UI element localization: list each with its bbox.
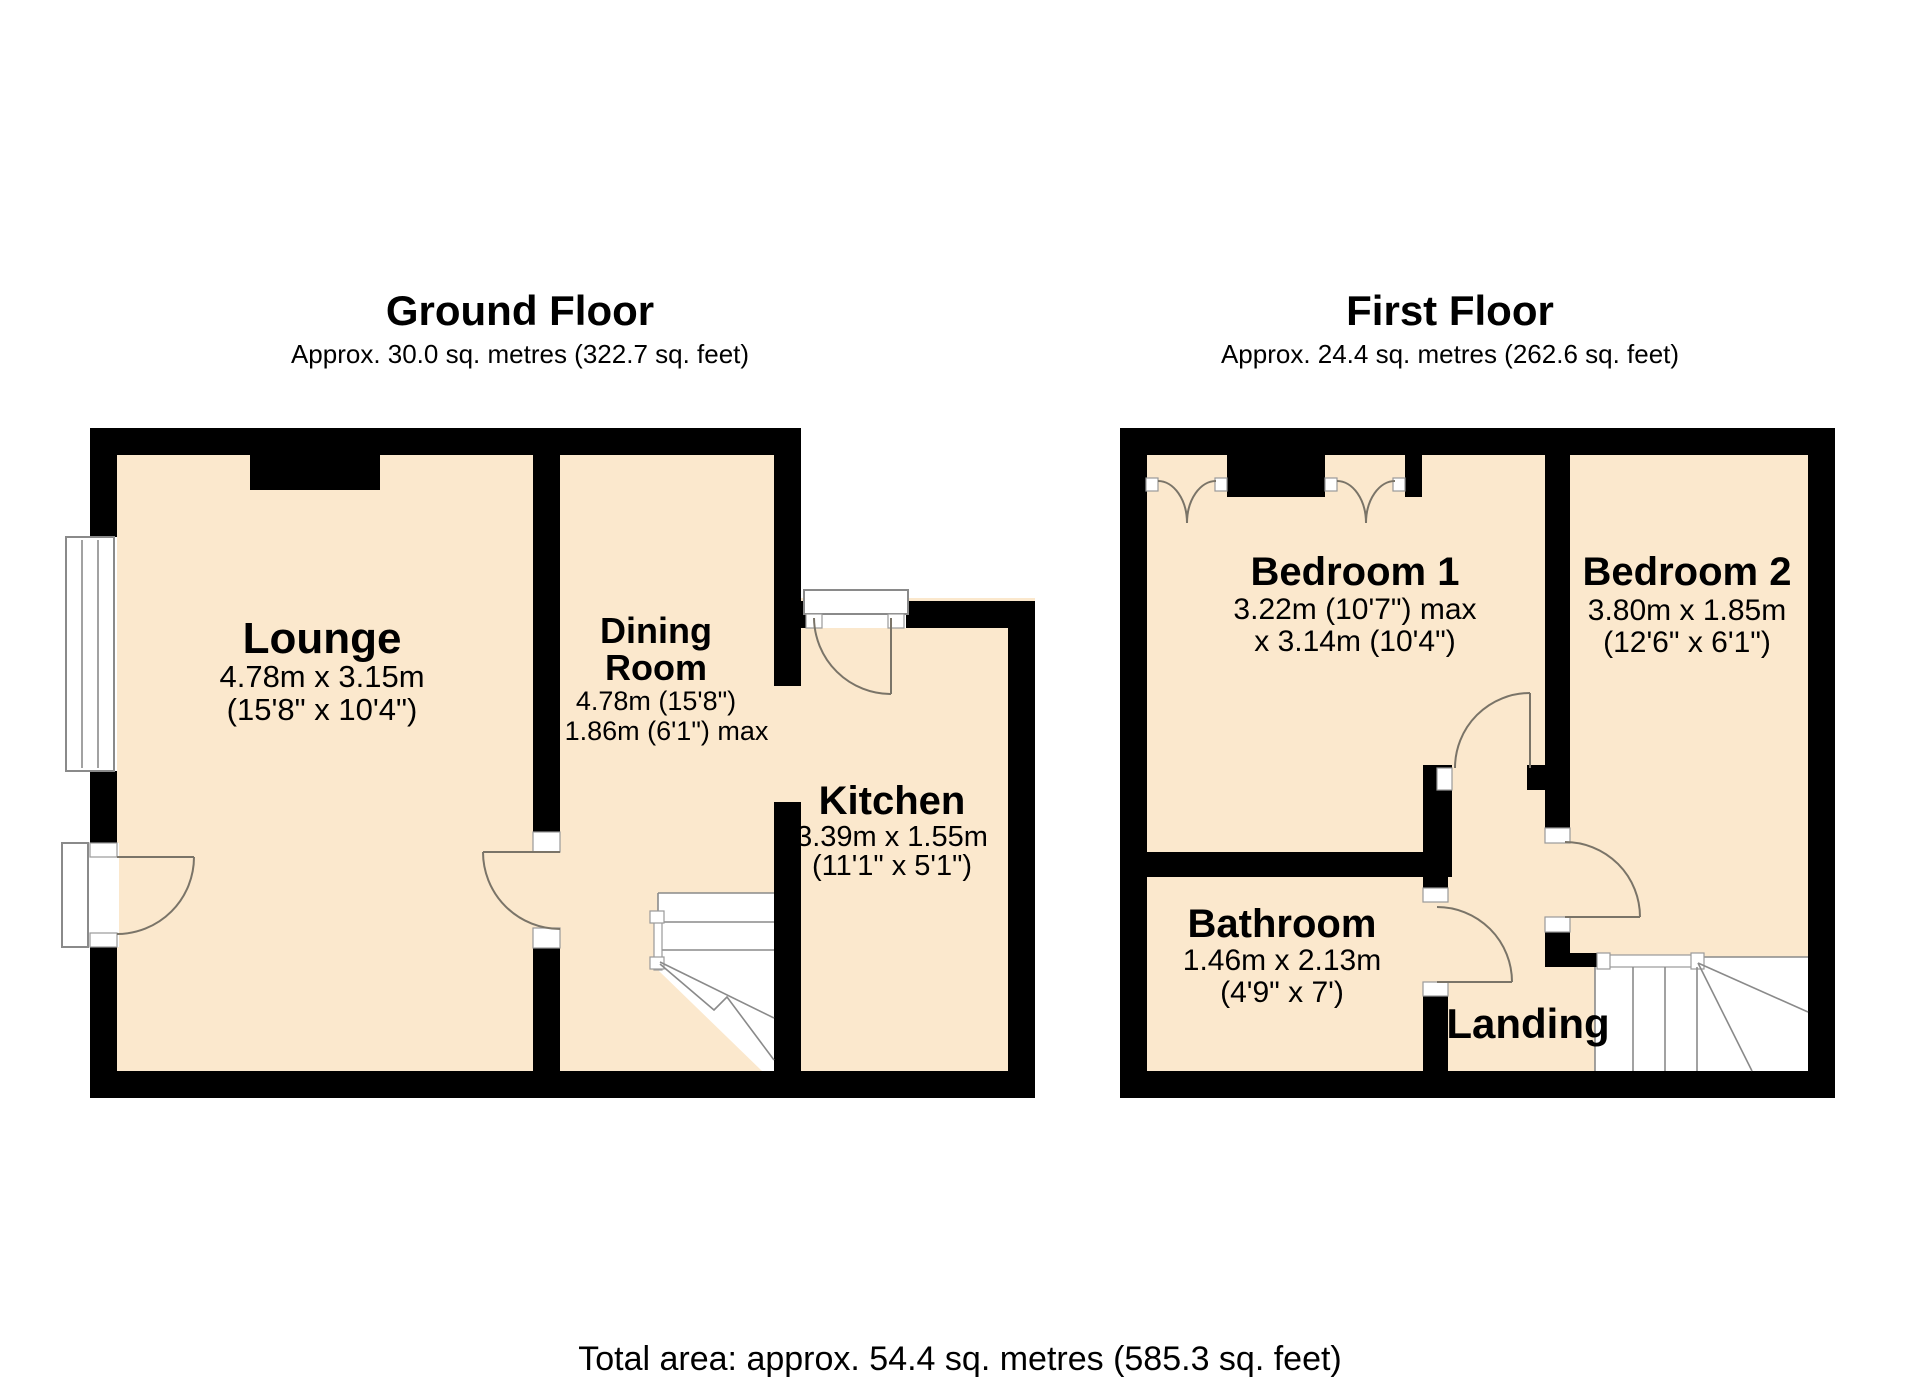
- door-jamb: [90, 933, 117, 947]
- lounge-dim-imperial: (15'8" x 10'4"): [227, 692, 418, 727]
- wall: [1120, 1071, 1835, 1098]
- wall-bedroom1-bathroom: [1146, 852, 1423, 877]
- bathroom-dim-imperial: (4'9" x 7'): [1220, 976, 1344, 1009]
- stair-newel: [650, 911, 664, 923]
- wall-kitchen-right: [1008, 601, 1035, 1098]
- bedroom2-label: Bedroom 2: [1583, 550, 1792, 594]
- window-jamb: [1215, 478, 1227, 491]
- kitchen-label: Kitchen: [819, 779, 966, 823]
- landing-label: Landing: [1446, 1000, 1609, 1047]
- floorplan-page: Ground Floor Approx. 30.0 sq. metres (32…: [0, 0, 1920, 1396]
- door-jamb: [533, 928, 560, 948]
- door-jamb: [1545, 917, 1570, 932]
- first-floor-stairs: [1595, 957, 1808, 1071]
- first-floor-title: First Floor: [1346, 287, 1554, 334]
- bedroom1-dim-imperial: x 3.14m (10'4"): [1254, 625, 1455, 658]
- window-jamb: [1325, 478, 1337, 491]
- bedroom1-dim-metric: 3.22m (10'7") max: [1233, 593, 1476, 626]
- wall: [90, 1071, 1035, 1098]
- ground-floor-plan: Ground Floor Approx. 30.0 sq. metres (32…: [62, 287, 1035, 1098]
- bedroom2-dim-imperial: (12'6" x 6'1"): [1603, 626, 1771, 659]
- door-jamb: [1423, 888, 1448, 902]
- bathroom-dim-metric: 1.46m x 2.13m: [1183, 944, 1381, 977]
- chimney-breast: [1227, 448, 1325, 497]
- dining-dim-metric: 4.78m (15'8"): [576, 686, 736, 716]
- wall: [1808, 428, 1835, 1098]
- ground-floor-subtitle: Approx. 30.0 sq. metres (322.7 sq. feet): [291, 339, 749, 369]
- floorplan-drawing: Ground Floor Approx. 30.0 sq. metres (32…: [0, 0, 1920, 1396]
- dining-dim-imperial: x 1.86m (6'1") max: [544, 716, 769, 746]
- door-jamb: [1423, 982, 1448, 996]
- kitchen-back-door: [804, 590, 908, 614]
- wall: [90, 428, 800, 455]
- bathroom-label: Bathroom: [1188, 902, 1377, 946]
- front-door: [62, 843, 88, 947]
- lounge-window: [66, 537, 114, 771]
- wall-stub: [1405, 448, 1422, 497]
- door-jamb: [1545, 828, 1570, 843]
- window-jamb: [1146, 478, 1158, 491]
- wall-landing: [1527, 765, 1545, 790]
- dining-label-2: Room: [605, 647, 707, 688]
- first-floor-plan: First Floor Approx. 24.4 sq. metres (262…: [1120, 287, 1835, 1098]
- stair-rail: [1608, 955, 1697, 967]
- chimney-breast: [250, 428, 380, 490]
- wall-bedroom-divider: [1545, 455, 1570, 828]
- bedroom2-dim-metric: 3.80m x 1.85m: [1588, 594, 1786, 627]
- dining-label-1: Dining: [600, 610, 712, 651]
- wall-bathroom-east: [1423, 996, 1448, 1071]
- ground-floor-title: Ground Floor: [386, 287, 654, 334]
- door-jamb: [1437, 768, 1452, 790]
- total-area-text: Total area: approx. 54.4 sq. metres (585…: [578, 1340, 1342, 1378]
- door-jamb: [90, 843, 117, 857]
- stair-newel: [1597, 953, 1610, 969]
- door-jamb: [533, 832, 560, 852]
- wall-lounge-dining: [533, 948, 560, 1071]
- wall: [1120, 428, 1147, 1098]
- kitchen-dim-imperial: (11'1" x 5'1"): [812, 850, 972, 882]
- window-jamb: [1393, 478, 1405, 491]
- lounge-label: Lounge: [243, 614, 402, 663]
- lounge-dim-metric: 4.78m x 3.15m: [219, 659, 424, 694]
- wall-lounge-dining: [533, 455, 560, 832]
- door-opening: [88, 843, 119, 947]
- first-floor-subtitle: Approx. 24.4 sq. metres (262.6 sq. feet): [1221, 339, 1679, 369]
- wall-dining-east: [774, 428, 801, 686]
- stair-newel: [1691, 953, 1704, 969]
- kitchen-dim-metric: 3.39m x 1.55m: [796, 821, 988, 853]
- bedroom1-label: Bedroom 1: [1251, 550, 1460, 594]
